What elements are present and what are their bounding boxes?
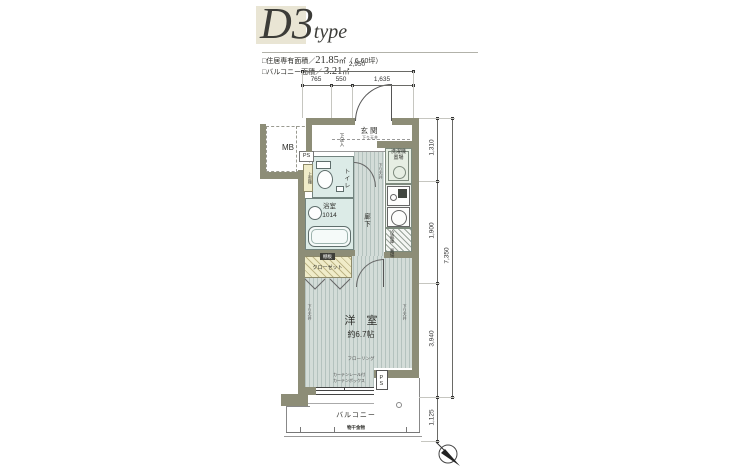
dim-line-right-outer (452, 118, 453, 397)
dim-right-3-label: 3,940 (429, 319, 436, 359)
dim-line-right-inner (437, 118, 438, 441)
fridge-label-line1: 冷蔵庫 (390, 230, 395, 244)
washer-label-line2: 置場 (385, 156, 412, 162)
window-sash-tick (344, 387, 345, 391)
balcony-rail-post-3 (406, 427, 407, 432)
bath-label: 浴室 (305, 203, 354, 210)
title-underline (262, 52, 478, 53)
entrance-ceiling-note: 下り天井 (350, 136, 390, 141)
window-mid-line (316, 390, 374, 391)
closet-label: クローゼット (303, 266, 352, 272)
title-suffix: type (314, 21, 347, 44)
dim-right-1-label: 1,310 (429, 128, 436, 168)
room-label: 洋 室 (330, 315, 392, 328)
room-ceiling-note-left: 下り天井 (307, 298, 312, 326)
toilet-bowl (317, 170, 333, 189)
dim-right-total-label: 7,350 (444, 236, 451, 276)
bath-size-label: 1014 (305, 212, 354, 219)
toilet-tank (316, 161, 331, 169)
room-door-leaf (383, 259, 384, 287)
balcony-sill-line (308, 403, 374, 404)
balcony-rail-line-1 (286, 432, 420, 433)
upper-shelf-label: 上部棚 (304, 166, 312, 190)
dim-extension (419, 397, 455, 398)
wall-mb-left (260, 124, 266, 177)
dim-top-seg2-label: 550 (329, 76, 353, 83)
dim-top-total-label: 2,950 (337, 61, 377, 68)
entrance-door-arc (355, 84, 392, 121)
dim-top-seg1-label: 765 (301, 76, 331, 83)
area-value-1: 21.85 (315, 55, 339, 66)
room-ceiling-note-right: 下り天井 (402, 298, 407, 326)
ps-upper-label: PS (299, 153, 314, 159)
closet-shelf-chip: 棚板 (320, 253, 335, 260)
wall-balcony-left-block (281, 394, 308, 406)
curtain-note-line1: カーテンレール付 (324, 373, 374, 378)
north-compass-icon (433, 441, 463, 470)
dim-line-top-total (302, 71, 413, 72)
balcony-drain (396, 402, 402, 408)
wall-genkan-washer (377, 141, 417, 148)
title-main: D3 (260, 2, 314, 46)
dim-line-top-segments (302, 85, 413, 86)
area-label-1: □住居専有面積／ (262, 58, 315, 65)
dim-extension (413, 71, 414, 118)
wall-right (412, 118, 419, 378)
ps-bottom-label: PS (378, 372, 384, 389)
wall-top-left (306, 118, 355, 125)
balcony-top-edge (286, 406, 310, 407)
plan-title: D3 type (260, 2, 347, 46)
fridge-label-line2: 置場 (390, 249, 395, 258)
balcony-right-edge (419, 378, 420, 433)
balcony-rail-line-2 (284, 436, 422, 437)
dim-right-4-label: 1,125 (429, 398, 436, 438)
kitchen-faucet (390, 194, 397, 201)
floor-plan-page: D3 type □住居専有面積／21.85㎡（ 6.60坪） □バルコニー面積／… (0, 0, 730, 470)
kitchen-burner (391, 210, 407, 226)
curtain-note-line2: カーテンボックス (324, 379, 374, 384)
dim-top-seg3-label: 1,635 (362, 76, 402, 83)
shoe-box-label: 下足入 (334, 127, 345, 152)
dim-extension (352, 85, 353, 118)
hallway-label: 廊下 (362, 206, 369, 234)
closet-folding-door-marks (303, 278, 353, 290)
bathtub-inner (311, 229, 348, 244)
toilet-label: トイレ (342, 162, 349, 194)
dim-extension (302, 71, 303, 118)
kitchen-sink-basin (398, 189, 407, 198)
dim-extension (419, 118, 455, 119)
washer-drain (393, 166, 406, 179)
wall-left-upper (306, 118, 312, 152)
bathtub (308, 226, 351, 247)
dim-right-2-label: 1,900 (429, 211, 436, 251)
washer-ceiling-note: 下り天井 (378, 158, 383, 184)
dim-extension (419, 181, 440, 182)
meter-box-label: MB (272, 143, 304, 152)
closet-shelf-label: 棚板 (323, 254, 332, 259)
dim-extension (419, 283, 440, 284)
flooring-label: フローリング (334, 356, 388, 361)
room-size-label: 約6.7帖 (330, 330, 392, 339)
balcony-note-label: 物干金物 (334, 425, 378, 430)
dim-extension (331, 85, 332, 118)
balcony-left-edge (286, 406, 287, 433)
balcony-label: バルコニー (326, 412, 386, 420)
balcony-rail-post-1 (300, 427, 301, 432)
entrance-door-leaf (391, 84, 392, 121)
window-frame (316, 387, 374, 395)
fridge-label: 冷蔵庫 置場 (390, 230, 395, 250)
